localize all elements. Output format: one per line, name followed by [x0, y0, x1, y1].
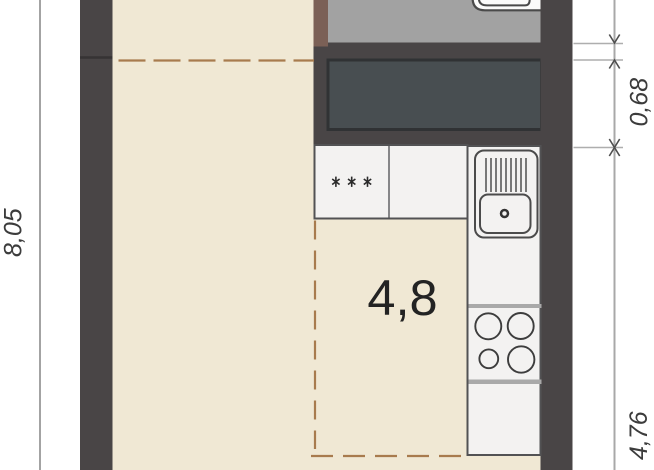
svg-text:0,68: 0,68 [626, 78, 654, 127]
svg-text:4,8: 4,8 [367, 269, 437, 326]
svg-text:8,05: 8,05 [0, 208, 28, 257]
svg-text:4,76: 4,76 [625, 411, 653, 460]
